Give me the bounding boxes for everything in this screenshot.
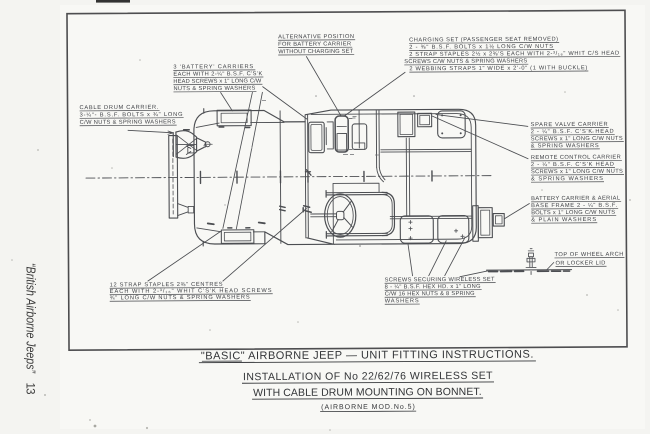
svg-text:OR LOCKER LID: OR LOCKER LID [555, 260, 605, 266]
svg-text:TOP OF WHEEL ARCH: TOP OF WHEEL ARCH [554, 252, 623, 258]
svg-text:WITH CABLE DRUM MOUNTING ON BO: WITH CABLE DRUM MOUNTING ON BONNET. [253, 386, 482, 399]
svg-text:SPARE VALVE CARRIER: SPARE VALVE CARRIER [531, 122, 608, 128]
svg-text:& SPRING WASHERS: & SPRING WASHERS [531, 143, 599, 149]
svg-text:& SPRING WASHERS: & SPRING WASHERS [531, 176, 603, 182]
svg-text:3 'BATTERY' CARRIERS: 3 'BATTERY' CARRIERS [173, 64, 253, 70]
svg-text:& PLAIN WASHERS: & PLAIN WASHERS [531, 217, 596, 223]
svg-text:(AIRBORNE MOD.No.5): (AIRBORNE MOD.No.5) [321, 404, 415, 411]
svg-text:WITHOUT CHARGING SET: WITHOUT CHARGING SET [278, 49, 353, 55]
svg-text:“British Airborne Jeeps”: “British Airborne Jeeps” [24, 263, 39, 374]
svg-text:"BASIC" AIRBORNE JEEP — UNIT F: "BASIC" AIRBORNE JEEP — UNIT FITTING INS… [201, 349, 534, 363]
svg-text:CABLE DRUM CARRIER.: CABLE DRUM CARRIER. [80, 105, 159, 111]
svg-text:FOR BATTERY CARRIER: FOR BATTERY CARRIER [278, 41, 351, 47]
svg-text:WASHERS: WASHERS [385, 298, 419, 304]
svg-text:ALTERNATIVE POSITION: ALTERNATIVE POSITION [278, 34, 354, 40]
svg-text:13: 13 [24, 383, 36, 395]
svg-text:INSTALLATION OF No 22/62/76 W: INSTALLATION OF No 22/62/76 WIRELESS SET [243, 370, 493, 383]
